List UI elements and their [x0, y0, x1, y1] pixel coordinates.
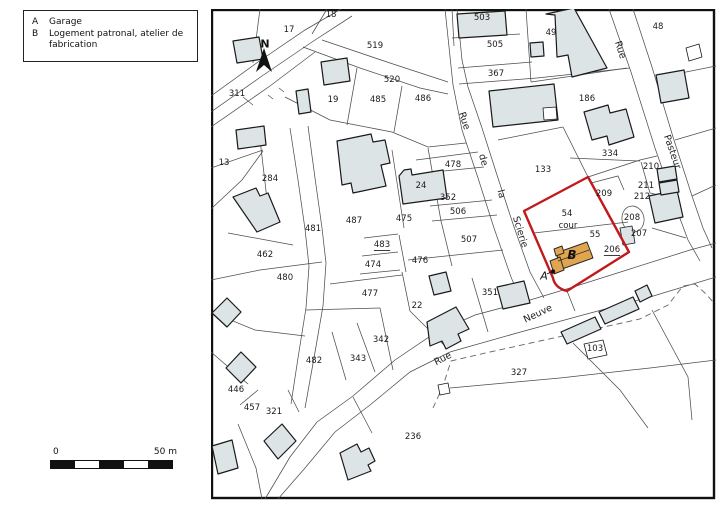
parcel-label-212: 212	[634, 192, 650, 202]
north-arrow-label: N	[260, 38, 269, 51]
parcel-label-24: 24	[416, 181, 427, 191]
parcel-label-474: 474	[365, 260, 381, 270]
parcel-label-13: 13	[219, 158, 230, 168]
parcel-label-485: 485	[370, 95, 386, 105]
parcel-label-507: 507	[461, 235, 477, 245]
parcel-label-367: 367	[488, 69, 504, 79]
parcel-label-cour: cour	[559, 221, 578, 231]
parcel-label-22: 22	[412, 301, 423, 311]
scale-end-label: 50 m	[154, 447, 177, 457]
parcel-label-478: 478	[445, 160, 461, 170]
scale-bar: 0 50 m	[50, 447, 173, 469]
parcel-label-486: 486	[415, 94, 431, 104]
parcel-label-186: 186	[579, 94, 595, 104]
legend-box: A Garage B Logement patronal, atelier de…	[23, 10, 198, 62]
parcel-label-48: 48	[653, 22, 664, 32]
parcel-label-236: 236	[405, 432, 421, 442]
parcel-label-55: 55	[590, 230, 601, 240]
building-label-B: B	[567, 248, 576, 262]
parcel-label-321: 321	[266, 407, 282, 417]
parcel-label-503: 503	[474, 13, 490, 23]
legend-key-b: B	[32, 29, 49, 52]
parcel-label-352: 352	[440, 193, 456, 203]
parcel-label-342: 342	[373, 335, 389, 345]
parcel-label-19: 19	[328, 95, 339, 105]
legend-label-a: Garage	[49, 17, 191, 29]
parcel-label-475: 475	[396, 214, 412, 224]
parcel-label-327: 327	[511, 368, 527, 378]
parcel-label-480: 480	[277, 273, 293, 283]
parcel-label-208: 208	[624, 213, 640, 223]
legend-item-a: A Garage	[32, 17, 191, 29]
parcel-label-209: 209	[596, 189, 612, 199]
parcel-label-311: 311	[229, 89, 245, 99]
parcel-label-54: 54	[562, 209, 573, 219]
scale-bar-graphic	[50, 460, 173, 469]
parcel-label-351: 351	[482, 288, 498, 298]
legend-label-b: Logement patronal, atelier de fabricatio…	[49, 29, 191, 52]
parcel-label-519: 519	[367, 41, 383, 51]
parcel-label-207: 207	[631, 229, 647, 239]
scale-start-label: 0	[53, 447, 59, 457]
parcel-label-17: 17	[284, 25, 295, 35]
parcel-label-506: 506	[450, 207, 466, 217]
cadastral-map-figure: A Garage B Logement patronal, atelier de…	[0, 0, 728, 515]
parcel-label-462: 462	[257, 250, 273, 260]
parcel-label-505: 505	[487, 40, 503, 50]
parcel-label-133: 133	[535, 165, 551, 175]
parcel-label-446: 446	[228, 385, 244, 395]
parcel-label-343: 343	[350, 354, 366, 364]
parcel-label-210: 210	[643, 162, 659, 172]
parcel-label-334: 334	[602, 149, 618, 159]
parcel-label-18: 18	[326, 10, 337, 20]
parcel-label-477: 477	[362, 289, 378, 299]
parcel-label-103: 103	[587, 344, 603, 354]
annotation-a-dot	[551, 269, 555, 273]
parcel-label-520: 520	[384, 75, 400, 85]
parcel-label-487: 487	[346, 216, 362, 226]
parcel-label-457: 457	[244, 403, 260, 413]
parcel-label-206: 206	[604, 245, 620, 255]
parcel-label-482: 482	[306, 356, 322, 366]
parcel-label-49: 49	[546, 28, 557, 38]
parcel-label-483: 483	[374, 240, 390, 250]
parcel-label-284: 284	[262, 174, 278, 184]
map-canvas: N 18173115195201948548650350549483671863…	[211, 9, 716, 500]
building-label-A: A	[539, 270, 548, 283]
parcel-label-476: 476	[412, 256, 428, 266]
parcel-label-481: 481	[305, 224, 321, 234]
parcel-label-211: 211	[638, 181, 654, 191]
legend-item-b: B Logement patronal, atelier de fabricat…	[32, 29, 191, 52]
legend-key-a: A	[32, 17, 49, 29]
